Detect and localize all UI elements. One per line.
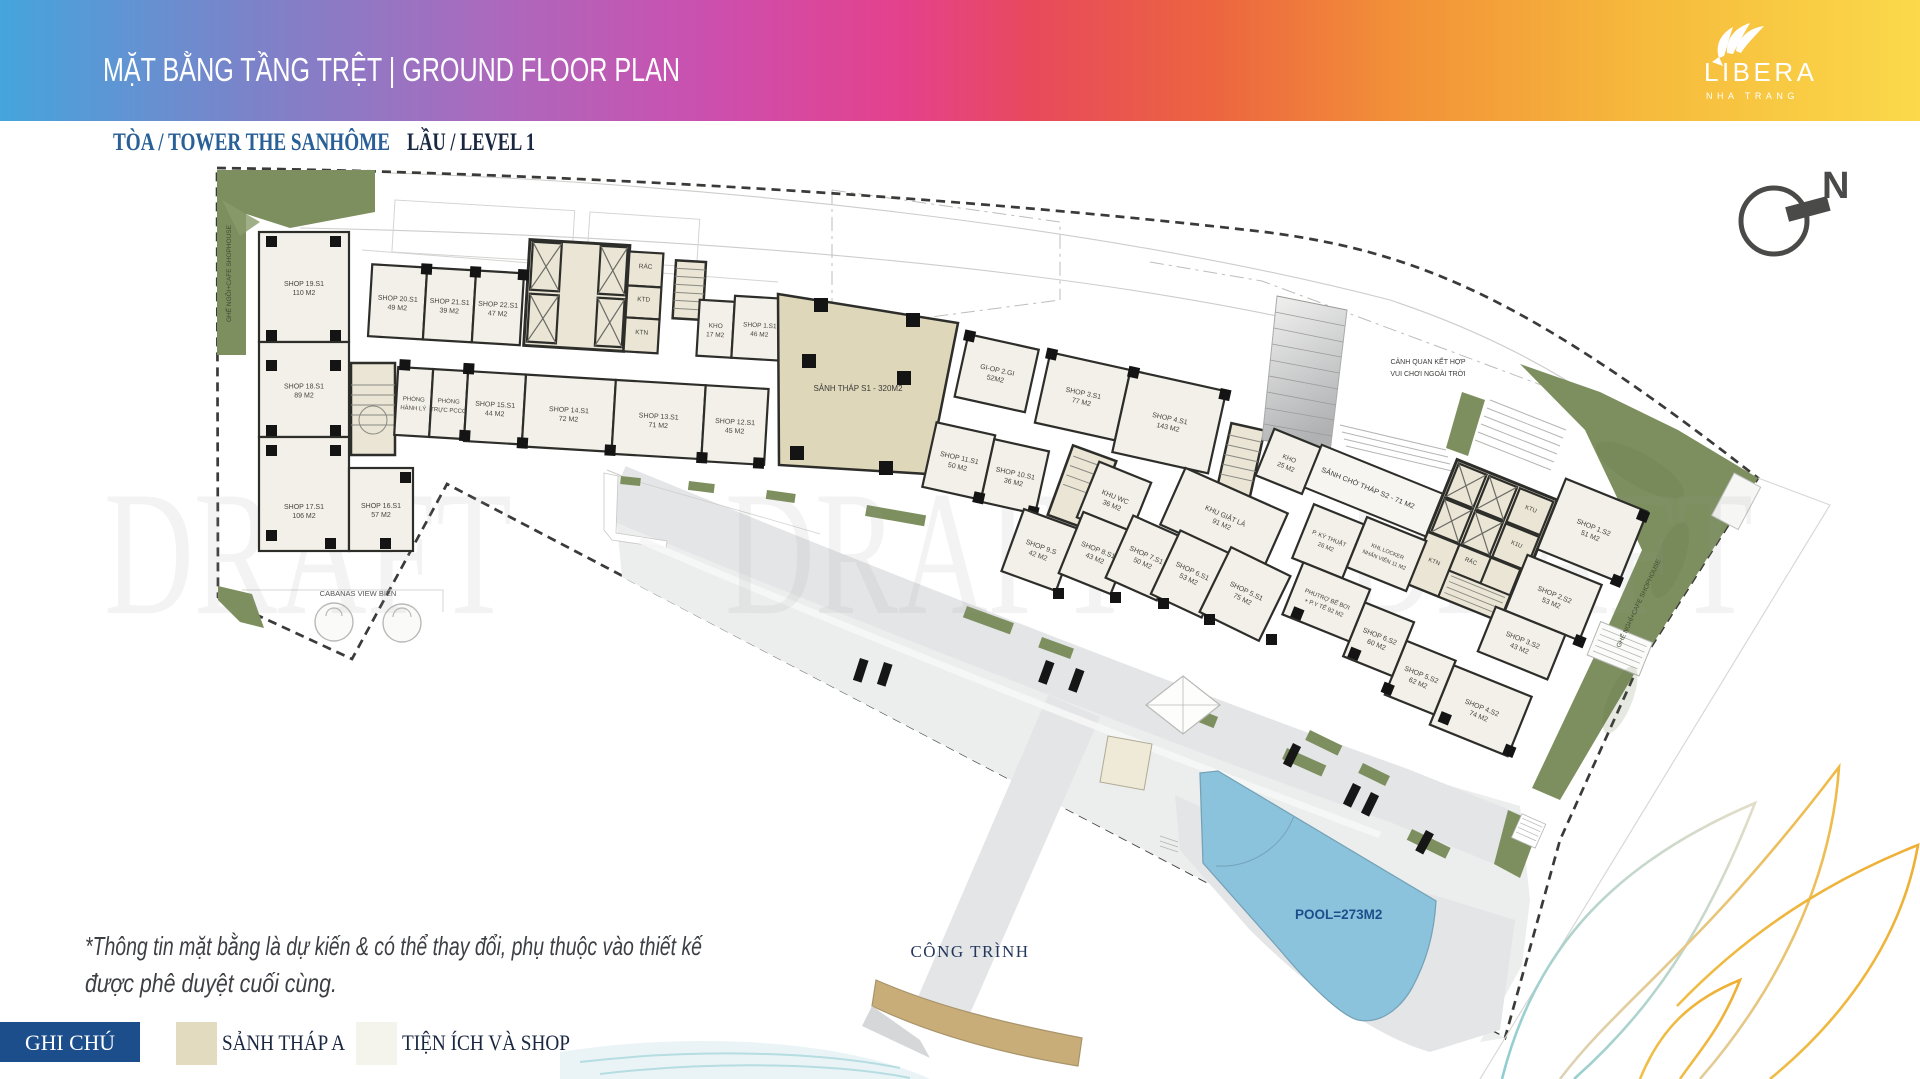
svg-text:89 M2: 89 M2 — [294, 393, 314, 400]
svg-text:VUI CHƠI NGOÀI TRỜI: VUI CHƠI NGOÀI TRỜI — [1390, 369, 1465, 378]
svg-text:71 M2: 71 M2 — [648, 422, 668, 430]
svg-text:GHI CHÚ: GHI CHÚ — [25, 1030, 115, 1055]
svg-text:SHOP 18.S1: SHOP 18.S1 — [284, 384, 324, 391]
svg-text:110 M2: 110 M2 — [293, 290, 316, 297]
svg-text:CÔNG TRÌNH: CÔNG TRÌNH — [910, 942, 1029, 961]
svg-text:LIBERA: LIBERA — [1704, 57, 1818, 87]
svg-text:SẢNH THÁP A: SẢNH THÁP A — [222, 1030, 345, 1055]
svg-text:N: N — [1822, 165, 1849, 207]
svg-text:NHA TRANG: NHA TRANG — [1706, 91, 1799, 101]
svg-text:44 M2: 44 M2 — [485, 410, 505, 418]
svg-text:*Thông tin mặt bằng là dự kiến: *Thông tin mặt bằng là dự kiến & có thể … — [85, 931, 703, 961]
svg-text:47 M2: 47 M2 — [488, 310, 508, 318]
svg-text:49 M2: 49 M2 — [387, 304, 407, 312]
svg-text:45 M2: 45 M2 — [725, 427, 745, 435]
svg-text:72 M2: 72 M2 — [558, 416, 578, 424]
svg-text:SHOP 17.S1: SHOP 17.S1 — [284, 504, 324, 511]
svg-text:KTD: KTD — [637, 296, 651, 304]
svg-text:17 M2: 17 M2 — [706, 331, 725, 339]
svg-text:POOL=273M2: POOL=273M2 — [1295, 907, 1382, 922]
svg-text:SẢNH THÁP S1 - 320M2: SẢNH THÁP S1 - 320M2 — [813, 384, 903, 393]
svg-text:PHÒNG: PHÒNG — [403, 395, 426, 403]
svg-text:SHOP 19.S1: SHOP 19.S1 — [284, 281, 324, 288]
svg-text:46 M2: 46 M2 — [750, 331, 769, 339]
svg-text:57 M2: 57 M2 — [371, 512, 391, 519]
svg-text:SHOP 16.S1: SHOP 16.S1 — [361, 503, 401, 510]
svg-text:được phê duyệt cuối cùng.: được phê duyệt cuối cùng. — [85, 968, 337, 998]
svg-text:KHO: KHO — [708, 322, 722, 330]
svg-text:PHÒNG: PHÒNG — [438, 397, 461, 405]
svg-text:TIỆN ÍCH VÀ SHOP: TIỆN ÍCH VÀ SHOP — [402, 1030, 570, 1055]
svg-text:TÒA / TOWER THE SANHÔME: TÒA / TOWER THE SANHÔME — [113, 127, 390, 156]
svg-text:106 M2: 106 M2 — [292, 513, 315, 520]
svg-text:KTN: KTN — [635, 329, 649, 337]
svg-text:LẦU / LEVEL 1: LẦU / LEVEL 1 — [407, 127, 535, 156]
svg-text:39 M2: 39 M2 — [439, 307, 459, 315]
svg-text:MẶT BẰNG TẦNG TRỆT | GROUND FL: MẶT BẰNG TẦNG TRỆT | GROUND FLOOR PLAN — [103, 51, 680, 88]
